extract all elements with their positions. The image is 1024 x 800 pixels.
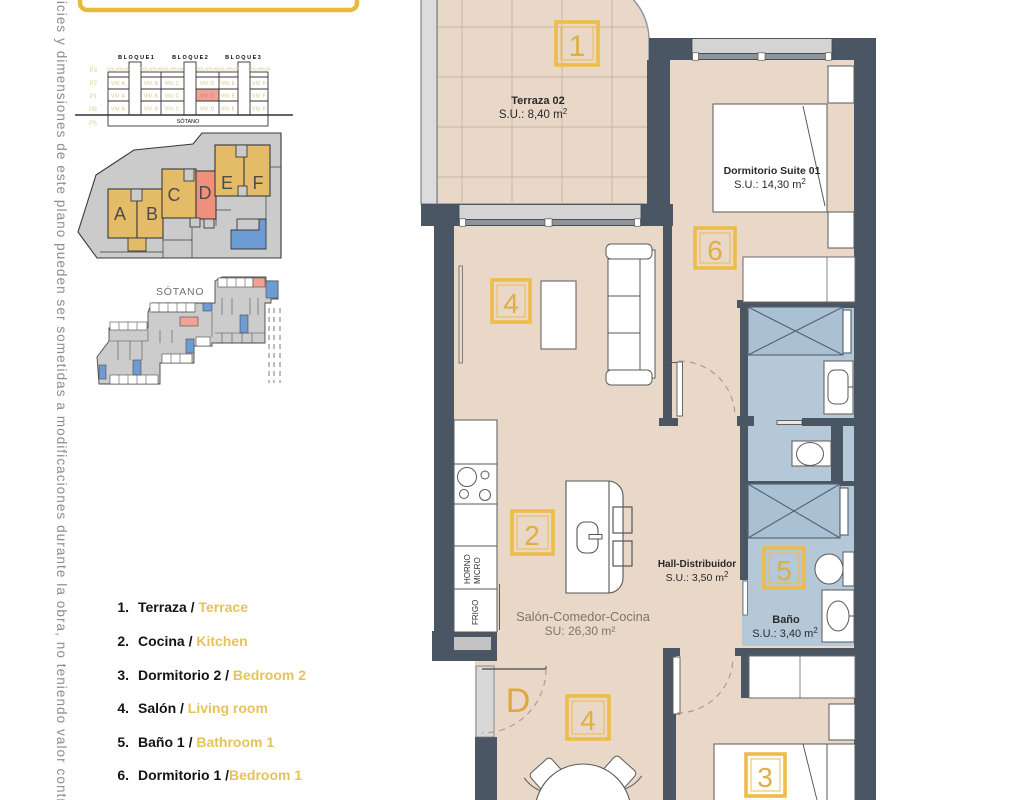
svg-text:6: 6 xyxy=(707,235,723,266)
svg-text:SÓTANO: SÓTANO xyxy=(156,285,204,298)
svg-text:4.: 4. xyxy=(117,700,129,716)
svg-text:VIV. B: VIV. B xyxy=(144,94,159,100)
svg-text:VIV. F: VIV. F xyxy=(252,107,266,113)
svg-text:Salón / Living room: Salón / Living room xyxy=(138,700,268,716)
svg-text:VIV. D: VIV. D xyxy=(200,107,215,113)
svg-text:2: 2 xyxy=(524,520,540,551)
svg-text:VIV. B: VIV. B xyxy=(144,107,159,113)
svg-text:VIV. C: VIV. C xyxy=(165,107,180,113)
svg-text:B L O Q U E 1: B L O Q U E 1 xyxy=(118,55,154,61)
svg-text:3: 3 xyxy=(757,762,773,793)
svg-text:VIV. F: VIV. F xyxy=(252,81,266,87)
svg-text:1: 1 xyxy=(569,30,586,63)
svg-text:SÓTANO: SÓTANO xyxy=(177,118,201,125)
svg-text:SOLARIUM: SOLARIUM xyxy=(196,67,218,72)
svg-text:VIV. F: VIV. F xyxy=(252,94,266,100)
svg-text:4: 4 xyxy=(503,288,519,319)
svg-text:Dormitorio Suite 01: Dormitorio Suite 01 xyxy=(724,165,821,177)
svg-text:VIV. A: VIV. A xyxy=(111,81,125,87)
svg-text:HORNO: HORNO xyxy=(463,554,472,584)
svg-text:Terraza 02: Terraza 02 xyxy=(511,95,565,107)
svg-text:SU: 26,30 m²: SU: 26,30 m² xyxy=(545,624,616,638)
svg-text:1.: 1. xyxy=(117,599,129,615)
svg-text:FRIGO: FRIGO xyxy=(471,600,480,625)
svg-text:Dormitorio 1 /Bedroom 1: Dormitorio 1 /Bedroom 1 xyxy=(138,767,302,783)
svg-text:Salón-Comedor-Cocina: Salón-Comedor-Cocina xyxy=(516,609,651,624)
svg-text:5: 5 xyxy=(776,555,792,586)
svg-text:4: 4 xyxy=(580,705,596,736)
svg-text:S.U.: 3,50 m2: S.U.: 3,50 m2 xyxy=(666,570,729,584)
svg-text:PB: PB xyxy=(89,107,97,113)
svg-text:B L O Q U E 2: B L O Q U E 2 xyxy=(172,55,208,61)
svg-text:MICRO: MICRO xyxy=(473,557,482,584)
svg-text:S.U.: 8,40 m2: S.U.: 8,40 m2 xyxy=(499,107,568,121)
svg-text:SOLARIUM: SOLARIUM xyxy=(248,67,270,72)
svg-text:P2: P2 xyxy=(90,81,98,87)
svg-text:SOLARIUM: SOLARIUM xyxy=(217,67,239,72)
svg-text:VIV. B: VIV. B xyxy=(144,81,159,87)
svg-text:D: D xyxy=(506,682,531,720)
svg-text:5.: 5. xyxy=(117,734,129,750)
svg-text:SOLARIUM: SOLARIUM xyxy=(161,67,183,72)
svg-text:B L O Q U E 3: B L O Q U E 3 xyxy=(225,55,261,61)
svg-text:P3: P3 xyxy=(90,68,98,74)
svg-text:VIV. A: VIV. A xyxy=(111,94,125,100)
svg-text:A: A xyxy=(114,204,126,224)
svg-text:S.U.: 14,30 m2: S.U.: 14,30 m2 xyxy=(734,177,806,191)
svg-text:P1: P1 xyxy=(90,94,98,100)
svg-text:B: B xyxy=(146,204,158,224)
svg-text:VIV. E: VIV. E xyxy=(221,81,236,87)
svg-text:F: F xyxy=(253,173,264,193)
svg-text:D: D xyxy=(199,183,212,203)
svg-text:VIV. A: VIV. A xyxy=(111,107,125,113)
svg-text:Cocina / Kitchen: Cocina / Kitchen xyxy=(138,633,248,649)
svg-text:VIV. C: VIV. C xyxy=(165,94,180,100)
svg-text:ficies y dimensiones de este p: ficies y dimensiones de este plano puede… xyxy=(54,0,69,800)
svg-text:Dormitorio 2 / Bedroom 2: Dormitorio 2 / Bedroom 2 xyxy=(138,667,306,683)
svg-text:VIV. C: VIV. C xyxy=(165,81,180,87)
svg-text:Baño 1 / Bathroom 1: Baño 1 / Bathroom 1 xyxy=(138,734,274,750)
svg-text:VIV. E: VIV. E xyxy=(221,107,236,113)
svg-text:PS: PS xyxy=(89,121,97,127)
svg-text:VIV. E: VIV. E xyxy=(221,94,236,100)
svg-text:2.: 2. xyxy=(117,633,129,649)
svg-text:E: E xyxy=(221,173,233,193)
svg-text:C: C xyxy=(168,185,181,205)
svg-text:Terraza / Terrace: Terraza / Terrace xyxy=(138,599,248,615)
svg-text:VIV. D: VIV. D xyxy=(200,81,215,87)
svg-text:S.U.: 3,40 m2: S.U.: 3,40 m2 xyxy=(752,626,818,640)
svg-text:6.: 6. xyxy=(117,767,129,783)
svg-text:Hall-Distribuidor: Hall-Distribuidor xyxy=(658,559,736,570)
svg-text:SOLARIUM: SOLARIUM xyxy=(107,67,129,72)
svg-text:SOLARIUM: SOLARIUM xyxy=(140,67,162,72)
svg-text:3.: 3. xyxy=(117,667,129,683)
svg-text:Baño: Baño xyxy=(772,614,800,626)
svg-text:VIV. D: VIV. D xyxy=(200,94,215,100)
